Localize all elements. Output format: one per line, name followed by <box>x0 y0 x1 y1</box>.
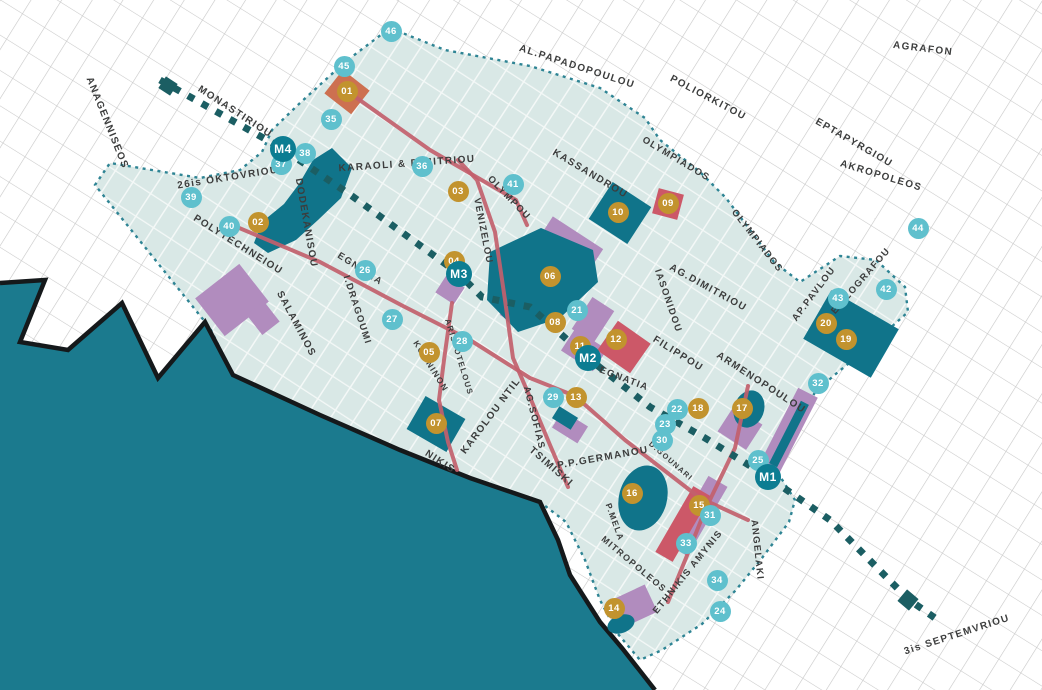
poi-marker-46[interactable]: 46 <box>381 21 402 42</box>
poi-marker-13[interactable]: 13 <box>566 387 587 408</box>
map-base-layers <box>0 0 1042 690</box>
poi-marker-28[interactable]: 28 <box>452 331 473 352</box>
poi-marker-18[interactable]: 18 <box>688 398 709 419</box>
poi-marker-10[interactable]: 10 <box>608 202 629 223</box>
metro-marker-M3[interactable]: M3 <box>446 261 472 287</box>
poi-marker-20[interactable]: 20 <box>816 313 837 334</box>
metro-marker-M1[interactable]: M1 <box>755 464 781 490</box>
poi-marker-08[interactable]: 08 <box>545 312 566 333</box>
poi-marker-12[interactable]: 12 <box>606 329 627 350</box>
poi-marker-05[interactable]: 05 <box>419 342 440 363</box>
poi-marker-27[interactable]: 27 <box>382 309 403 330</box>
poi-marker-26[interactable]: 26 <box>355 260 376 281</box>
poi-marker-33[interactable]: 33 <box>676 533 697 554</box>
poi-marker-31[interactable]: 31 <box>700 505 721 526</box>
poi-marker-30[interactable]: 30 <box>652 430 673 451</box>
poi-marker-06[interactable]: 06 <box>540 266 561 287</box>
poi-marker-32[interactable]: 32 <box>808 373 829 394</box>
poi-marker-07[interactable]: 07 <box>426 413 447 434</box>
poi-marker-38[interactable]: 38 <box>295 143 316 164</box>
poi-marker-16[interactable]: 16 <box>622 483 643 504</box>
poi-marker-42[interactable]: 42 <box>876 279 897 300</box>
poi-marker-21[interactable]: 21 <box>567 300 588 321</box>
poi-marker-34[interactable]: 34 <box>707 570 728 591</box>
poi-marker-01[interactable]: 01 <box>337 81 358 102</box>
poi-marker-09[interactable]: 09 <box>658 193 679 214</box>
poi-marker-02[interactable]: 02 <box>248 212 269 233</box>
poi-marker-39[interactable]: 39 <box>181 187 202 208</box>
poi-marker-35[interactable]: 35 <box>321 109 342 130</box>
metro-marker-M4[interactable]: M4 <box>270 136 296 162</box>
poi-marker-17[interactable]: 17 <box>732 398 753 419</box>
poi-marker-40[interactable]: 40 <box>219 216 240 237</box>
poi-marker-29[interactable]: 29 <box>543 387 564 408</box>
metro-marker-M2[interactable]: M2 <box>575 345 601 371</box>
poi-marker-19[interactable]: 19 <box>836 329 857 350</box>
poi-marker-14[interactable]: 14 <box>604 598 625 619</box>
city-map: ANAGENNISEOSMONASTIRIOU26is OKTOVRIOUPOL… <box>0 0 1042 690</box>
poi-marker-45[interactable]: 45 <box>334 56 355 77</box>
poi-marker-36[interactable]: 36 <box>412 156 433 177</box>
poi-marker-43[interactable]: 43 <box>828 288 849 309</box>
poi-marker-24[interactable]: 24 <box>710 601 731 622</box>
poi-marker-03[interactable]: 03 <box>448 181 469 202</box>
poi-marker-44[interactable]: 44 <box>908 218 929 239</box>
poi-marker-41[interactable]: 41 <box>503 174 524 195</box>
